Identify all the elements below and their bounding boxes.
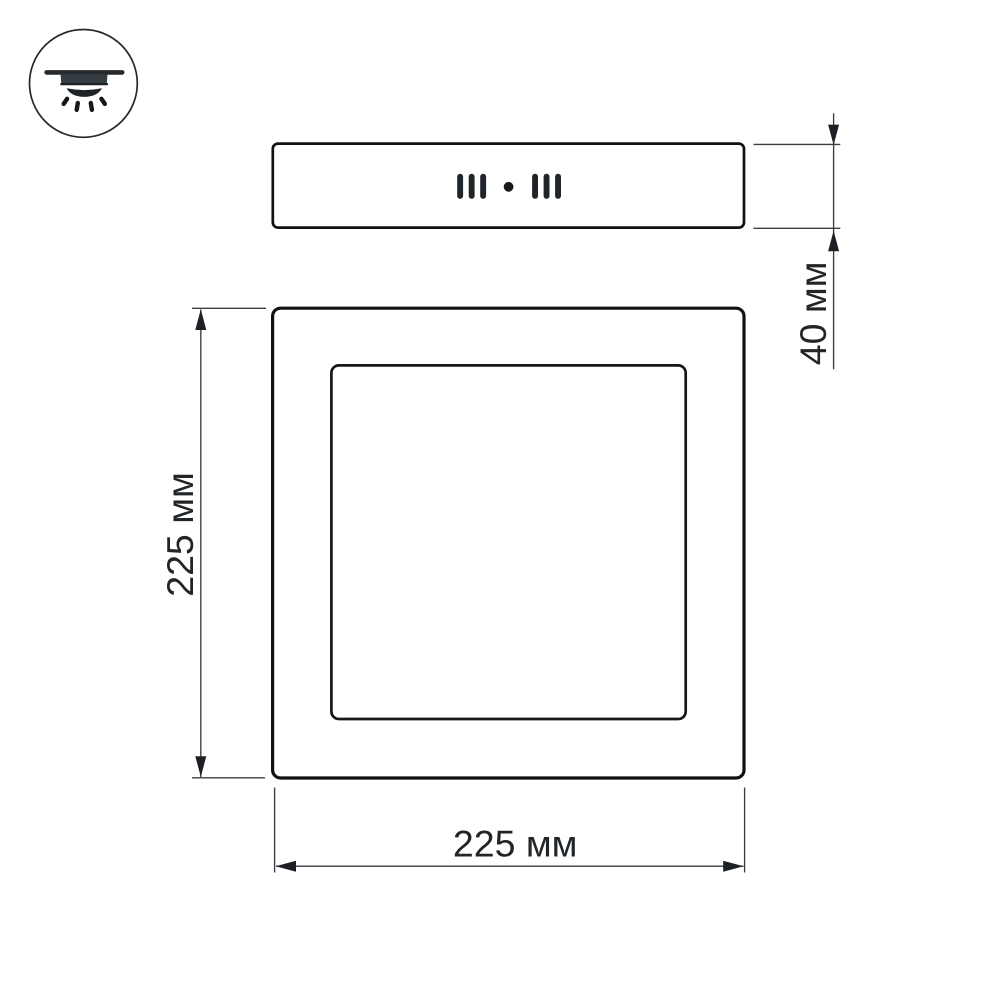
svg-text:225 мм: 225 мм <box>159 472 201 597</box>
svg-text:40 мм: 40 мм <box>792 262 834 366</box>
svg-text:225 мм: 225 мм <box>453 822 578 864</box>
